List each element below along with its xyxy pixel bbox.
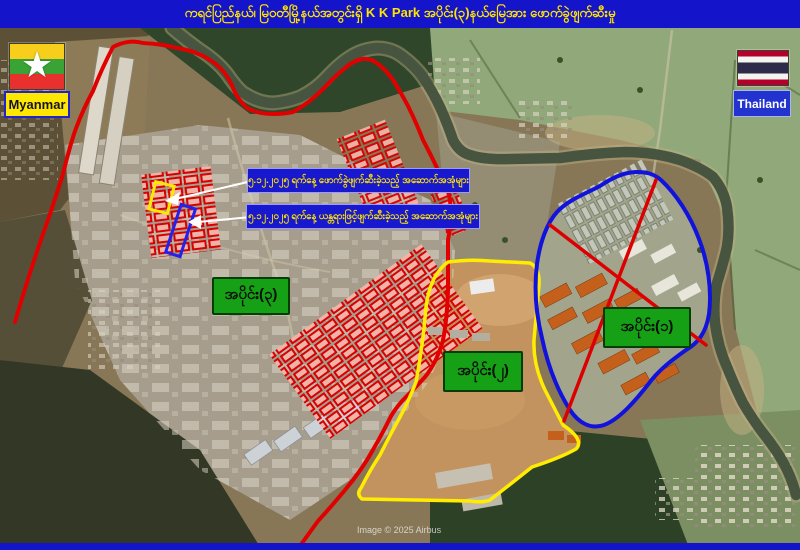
myanmar-flag: ★ [9, 43, 65, 90]
marked-buildings-cluster-west [141, 166, 221, 258]
callout-machinery-destroyed-buildings: ၅.၁၂.၂၀၂၅ ရက်နေ့ ယန္တရားဖြင့်ဖျက်ဆီးခဲ့သ… [246, 204, 480, 229]
myanmar-flag-label: Myanmar [4, 91, 70, 118]
section-3-label: အပိုင်း(၃) [212, 277, 290, 315]
callout-demolished-buildings: ၅.၁၂.၂၀၂၅ ရက်နေ့ ဖောက်ခွဲဖျက်ဆီးခဲ့သည့် … [247, 168, 470, 193]
imagery-credit: Image © 2025 Airbus [357, 525, 441, 535]
satellite-map-layers [0, 0, 800, 550]
white-star-icon: ★ [21, 47, 53, 83]
section-2-label: အပိုင်း(၂) [443, 351, 523, 392]
page-title: ကရင်ပြည်နယ်၊ မြဝတီမြို့နယ်အတွင်းရှိ K K … [185, 5, 616, 24]
bottom-bar [0, 543, 800, 550]
thailand-flag-label: Thailand [733, 90, 791, 117]
title-bar: ကရင်ပြည်နယ်၊ မြဝတီမြို့နယ်အတွင်းရှိ K K … [0, 0, 800, 28]
annotated-satellite-map-page: ကရင်ပြည်နယ်၊ မြဝတီမြို့နယ်အတွင်းရှိ K K … [0, 0, 800, 550]
section-1-label: အပိုင်း(၁) [603, 307, 691, 348]
thailand-flag [737, 50, 789, 86]
